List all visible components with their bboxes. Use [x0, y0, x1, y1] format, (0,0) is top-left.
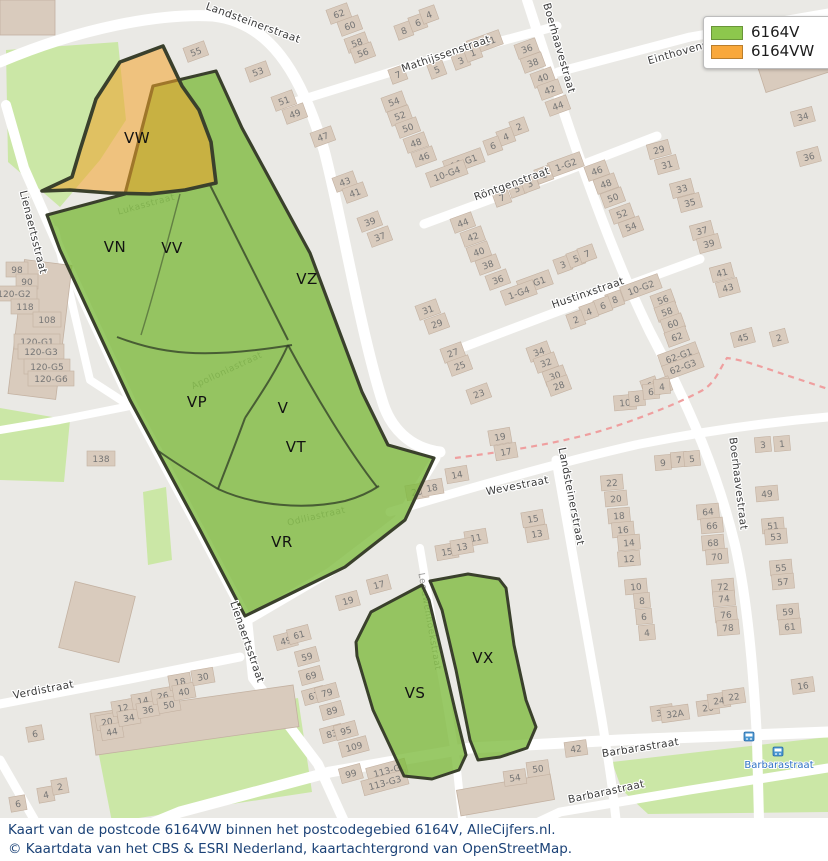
building-number: 74: [718, 594, 731, 605]
region-label-vt: VT: [286, 438, 307, 456]
building-number: 120-G2: [0, 290, 31, 300]
building-number: 78: [722, 623, 735, 634]
bus-icon: [773, 747, 783, 756]
caption-line-1: Kaart van de postcode 6164VW binnen het …: [8, 821, 828, 840]
building-number: 9: [660, 459, 667, 469]
legend-label: 6164VW: [751, 43, 814, 60]
building-number: 108: [38, 316, 55, 326]
building-number: 20: [610, 494, 623, 505]
building-number: 138: [92, 455, 109, 465]
building-number: 19: [494, 432, 507, 444]
building-number: 61: [784, 623, 796, 634]
building-number: 50: [163, 700, 176, 712]
building-number: 3: [760, 441, 767, 451]
building-number: 4: [644, 629, 651, 639]
building-number: 66: [706, 521, 719, 532]
map-caption: Kaart van de postcode 6164VW binnen het …: [0, 818, 828, 861]
building-number: 12: [623, 555, 635, 566]
region-label-vp: VP: [187, 393, 207, 411]
building-number: 1: [779, 440, 786, 450]
map-canvas[interactable]: 55535149626058568647531-G115452504847363…: [0, 0, 828, 818]
building-number: 53: [770, 533, 782, 544]
bus-icon: [744, 732, 754, 741]
building-number: 15: [527, 514, 540, 526]
region-label-v: V: [278, 399, 289, 417]
building-number: 8: [634, 395, 641, 405]
building-number: 6: [641, 613, 648, 623]
map-legend: 6164V 6164VW: [703, 16, 828, 69]
building-number: 17: [500, 447, 513, 459]
building-number: 14: [623, 538, 636, 549]
building-number: 50: [532, 764, 545, 776]
building-number: 4: [659, 383, 666, 393]
building-number: 14: [451, 470, 464, 482]
building-number: 13: [531, 529, 544, 541]
caption-line-2: © Kaartdata van het CBS & ESRI Nederland…: [8, 840, 828, 859]
building-number: 8: [639, 597, 646, 607]
building-number: 120-G6: [34, 375, 68, 385]
building-number: 54: [509, 773, 522, 785]
building-number: 55: [775, 564, 787, 575]
building-number: 120-G3: [24, 348, 57, 358]
building-number: 13: [456, 542, 469, 554]
building-number: 34: [123, 713, 136, 725]
legend-swatch-green: [711, 26, 743, 40]
building-number: 40: [178, 687, 191, 699]
building-number: 6: [648, 388, 655, 398]
postcode-map-page: 55535149626058568647531-G115452504847363…: [0, 0, 828, 861]
building-number: 118: [16, 303, 33, 313]
bus-stop-name: Barbarastraat: [744, 760, 813, 771]
building-number: 7: [676, 456, 683, 466]
building-number: 70: [711, 552, 724, 563]
region-label-vw: VW: [124, 129, 150, 147]
building-number: 42: [570, 744, 583, 755]
legend-row-6164vw: 6164VW: [711, 43, 827, 60]
region-label-vr: VR: [271, 533, 293, 551]
legend-row-6164v: 6164V: [711, 24, 827, 41]
building-number: 44: [106, 727, 119, 739]
region-label-vn: VN: [104, 238, 126, 256]
building-number: 16: [797, 681, 810, 693]
building-number: 22: [728, 692, 741, 703]
building-number: 59: [782, 607, 795, 618]
building-number: 22: [606, 479, 618, 490]
building-number: 18: [426, 483, 439, 495]
region-label-vv: VV: [161, 239, 183, 257]
map-svg: 55535149626058568647531-G115452504847363…: [0, 0, 828, 818]
building-number: 18: [613, 511, 626, 522]
building-number: 64: [702, 507, 715, 518]
legend-label: 6164V: [751, 24, 799, 41]
legend-swatch-orange: [711, 45, 743, 59]
region-label-vs: VS: [405, 684, 426, 702]
building-number: 10: [630, 582, 643, 593]
building-number: 30: [197, 672, 210, 684]
region-label-vz: VZ: [296, 270, 318, 288]
building-number: 5: [689, 455, 696, 465]
building-number: 49: [761, 489, 774, 500]
building-number: 57: [777, 578, 789, 589]
building-number: 68: [707, 538, 720, 549]
region-label-vx: VX: [472, 649, 494, 667]
building-number: 36: [142, 705, 155, 717]
